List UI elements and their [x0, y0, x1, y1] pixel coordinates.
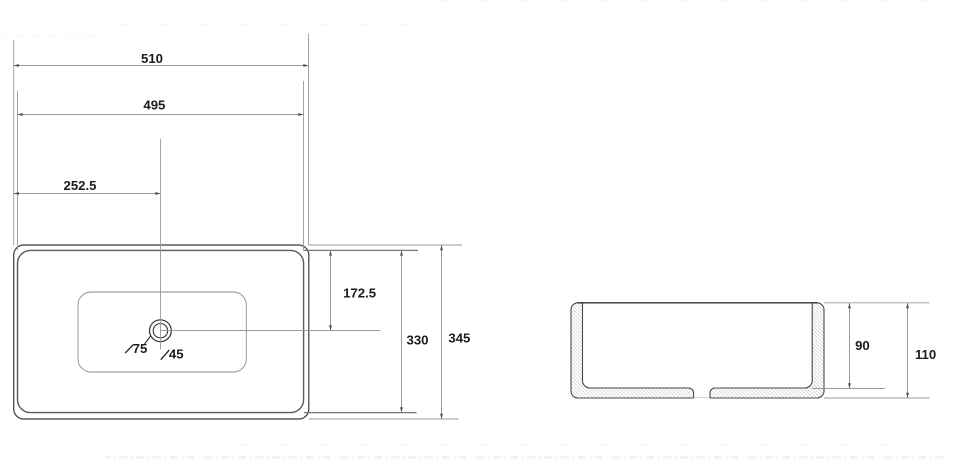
svg-text:90: 90 [855, 338, 870, 353]
svg-text:45: 45 [169, 347, 184, 362]
svg-text:345: 345 [448, 331, 470, 346]
svg-text:510: 510 [141, 51, 163, 66]
svg-text:330: 330 [406, 333, 428, 348]
svg-text:110: 110 [915, 347, 936, 362]
svg-text:75: 75 [133, 341, 148, 356]
svg-text:495: 495 [143, 97, 165, 112]
svg-text:252.5: 252.5 [63, 178, 96, 193]
svg-text:172.5: 172.5 [343, 285, 376, 300]
